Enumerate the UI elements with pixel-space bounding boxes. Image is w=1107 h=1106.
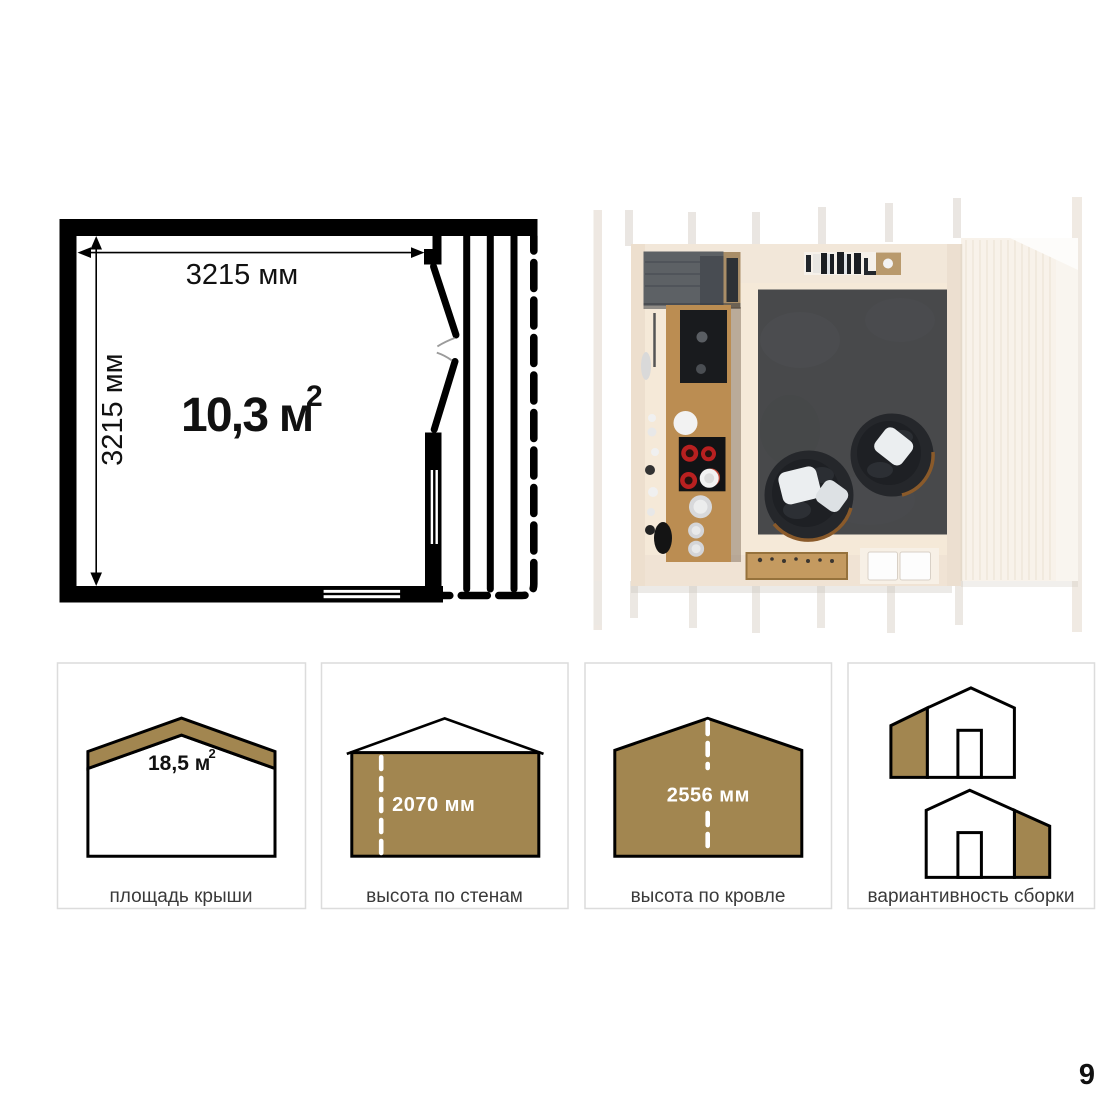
- svg-text:2556 мм: 2556 мм: [667, 785, 750, 807]
- svg-text:вариантивность сборки: вариантивность сборки: [868, 886, 1075, 907]
- svg-text:высота по кровле: высота по кровле: [631, 886, 786, 907]
- svg-text:3215 мм: 3215 мм: [186, 259, 298, 291]
- svg-text:3215 мм: 3215 мм: [97, 353, 129, 465]
- svg-text:высота по стенам: высота по стенам: [366, 886, 523, 907]
- svg-text:площадь крыши: площадь крыши: [109, 886, 252, 907]
- svg-text:2: 2: [306, 380, 323, 413]
- svg-text:9: 9: [1079, 1059, 1095, 1091]
- svg-text:2: 2: [209, 746, 216, 761]
- svg-text:2070 мм: 2070 мм: [392, 794, 475, 816]
- svg-text:10,3 м: 10,3 м: [181, 389, 312, 442]
- svg-text:18,5 м: 18,5 м: [148, 752, 210, 775]
